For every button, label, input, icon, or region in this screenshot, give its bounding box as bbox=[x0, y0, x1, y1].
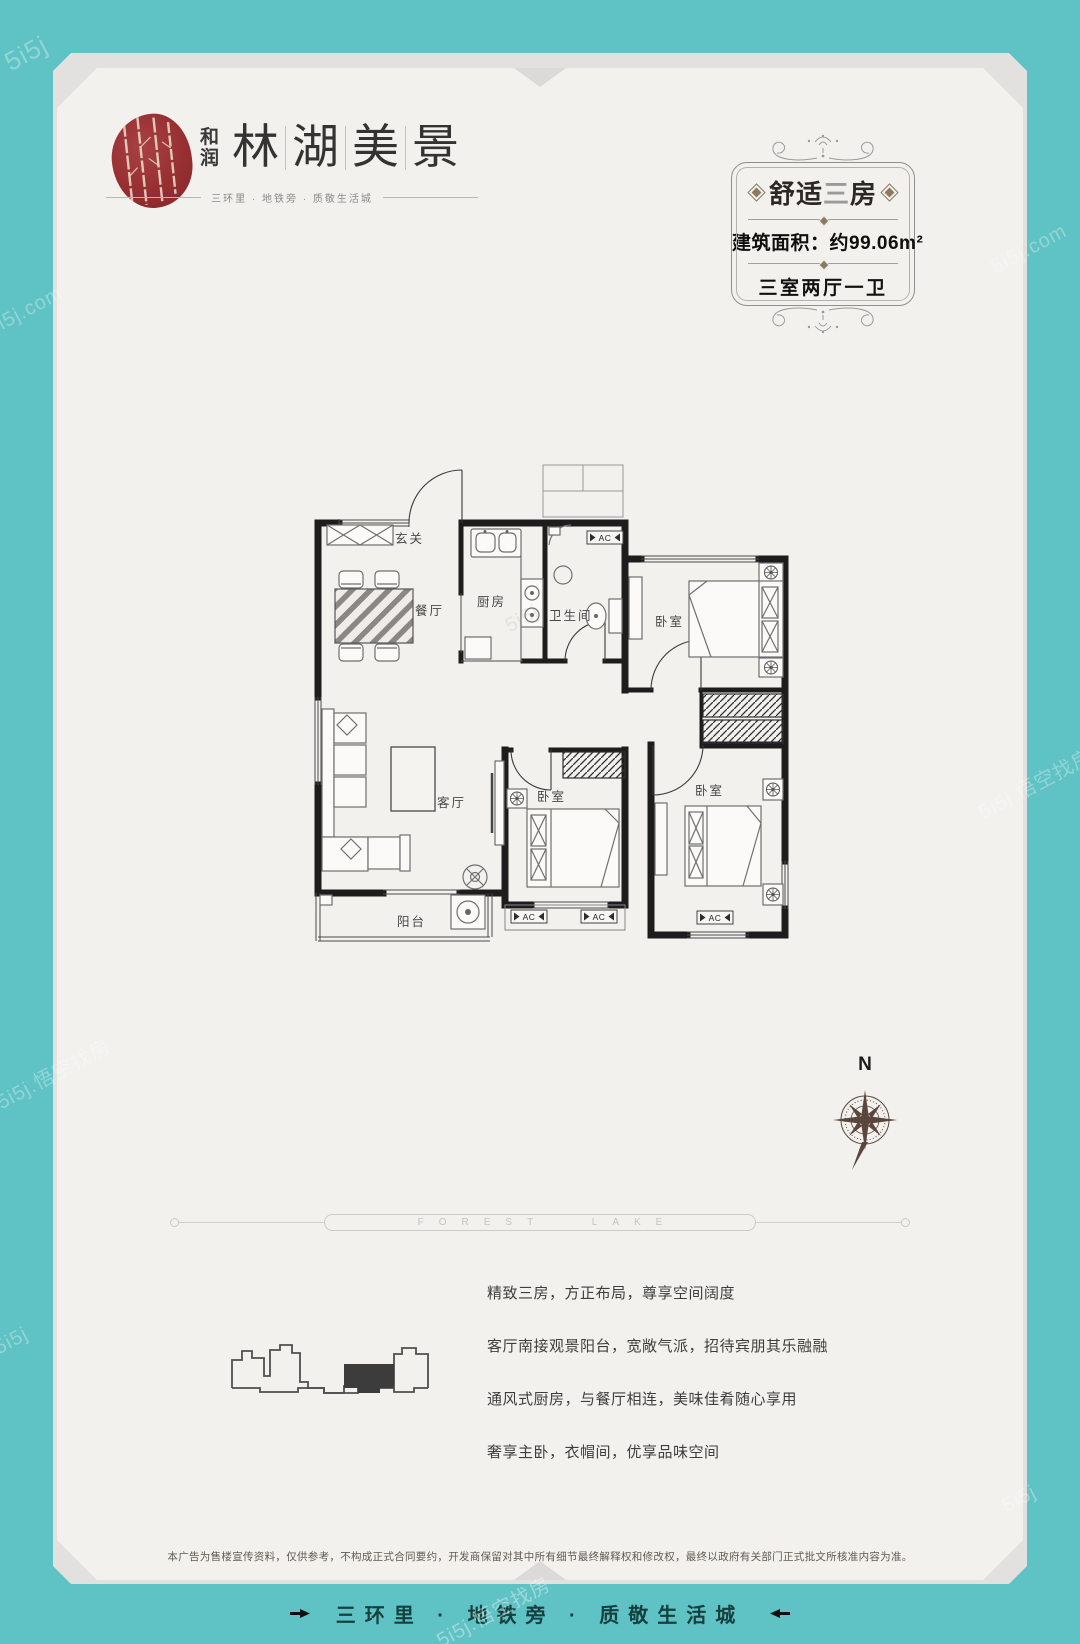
balcony-label: 阳台 bbox=[397, 914, 426, 929]
dining-label: 餐厅 bbox=[415, 603, 444, 618]
diamond-ornament-icon bbox=[885, 188, 895, 198]
brand-name-small: 和 润 bbox=[200, 127, 219, 169]
bath-label: 卫生间 bbox=[549, 609, 593, 623]
svg-text:AC: AC bbox=[523, 912, 536, 922]
doors bbox=[409, 470, 703, 795]
bedroom-mid-label: 卧室 bbox=[537, 789, 566, 804]
arrow-left-icon bbox=[768, 1607, 792, 1620]
forest-lake-divider: FOREST LAKE bbox=[170, 1214, 910, 1230]
top-fold-notch bbox=[514, 68, 566, 87]
compass-icon: N bbox=[822, 1052, 908, 1172]
flourish-ornament-icon bbox=[731, 132, 915, 162]
badge-title: 舒适三房 bbox=[732, 174, 914, 211]
bottom-fold-notch bbox=[514, 1561, 566, 1580]
footer-strip: 三环里 · 地铁旁 · 质敬生活城 bbox=[0, 1582, 1080, 1644]
entry-label: 玄关 bbox=[395, 531, 424, 546]
building-footprint-icon bbox=[226, 1336, 438, 1400]
svg-text:AC: AC bbox=[599, 533, 612, 543]
svg-text:AC: AC bbox=[593, 912, 606, 922]
feature-line: 客厅南接观景阳台，宽敞气派，招待宾朋其乐融融 bbox=[487, 1336, 847, 1357]
feature-line: 精致三房，方正布局，尊享空间阔度 bbox=[487, 1283, 847, 1304]
floorplan: AC AC AC AC 玄关 餐厅 厨房 卫生间 卧室 客厅 卧室 卧室 阳台 bbox=[293, 443, 793, 953]
stairwell bbox=[543, 465, 623, 517]
feature-list: 精致三房，方正布局，尊享空间阔度 客厅南接观景阳台，宽敞气派，招待宾朋其乐融融 … bbox=[487, 1283, 847, 1495]
svg-text:AC: AC bbox=[709, 913, 722, 923]
wardrobes bbox=[563, 694, 783, 778]
badge-divider bbox=[748, 219, 898, 220]
living-room-furniture bbox=[322, 709, 504, 889]
arrow-right-icon bbox=[288, 1607, 312, 1620]
divider-capsule: FOREST LAKE bbox=[324, 1214, 756, 1231]
disclaimer: 本广告为售楼宣传资料，仅供参考，不构成正式合同要约，开发商保留对其中所有细节最终… bbox=[57, 1549, 1023, 1564]
dining-table bbox=[335, 571, 413, 661]
kitchen-label: 厨房 bbox=[477, 594, 506, 609]
bedroom2-furniture bbox=[629, 563, 783, 677]
compass-north-label: N bbox=[858, 1054, 872, 1075]
unit-badge: 舒适三房 建筑面积：约99.06m² 三室两厅一卫 bbox=[731, 130, 915, 336]
watermark: 5i5j bbox=[0, 1323, 32, 1360]
poster: 和 润 林湖美景 三环里 · 地铁旁 · 质敬生活城 bbox=[0, 0, 1080, 1644]
divider-end-circle bbox=[170, 1218, 179, 1227]
brand-name: 和 润 林湖美景 bbox=[200, 122, 462, 174]
feature-line: 通风式厨房，与餐厅相连，美味佳肴随心享用 bbox=[487, 1389, 847, 1410]
watermark: 5i5j bbox=[0, 29, 53, 77]
brand-logo: 和 润 林湖美景 三环里 · 地铁旁 · 质敬生活城 bbox=[108, 108, 488, 218]
badge-divider bbox=[748, 263, 898, 264]
divider-end-circle bbox=[901, 1218, 910, 1227]
brand-tagline: 三环里 · 地铁旁 · 质敬生活城 bbox=[106, 190, 478, 205]
master-bedroom-label: 卧室 bbox=[695, 783, 724, 798]
entry-cabinet bbox=[327, 525, 393, 545]
badge-layout: 三室两厅一卫 bbox=[732, 273, 914, 300]
badge-frame: 舒适三房 建筑面积：约99.06m² 三室两厅一卫 bbox=[731, 162, 915, 306]
bedroom2-label: 卧室 bbox=[655, 614, 684, 629]
badge-area: 建筑面积：约99.06m² bbox=[732, 228, 914, 255]
living-label: 客厅 bbox=[437, 795, 466, 810]
footer-slogan: 三环里 · 地铁旁 · 质敬生活城 bbox=[336, 1599, 745, 1628]
diamond-ornament-icon bbox=[752, 188, 762, 198]
brand-name-large: 林湖美景 bbox=[229, 122, 462, 174]
flourish-ornament-icon bbox=[731, 306, 915, 336]
feature-line: 奢享主卧，衣帽间，优享品味空间 bbox=[487, 1442, 847, 1463]
